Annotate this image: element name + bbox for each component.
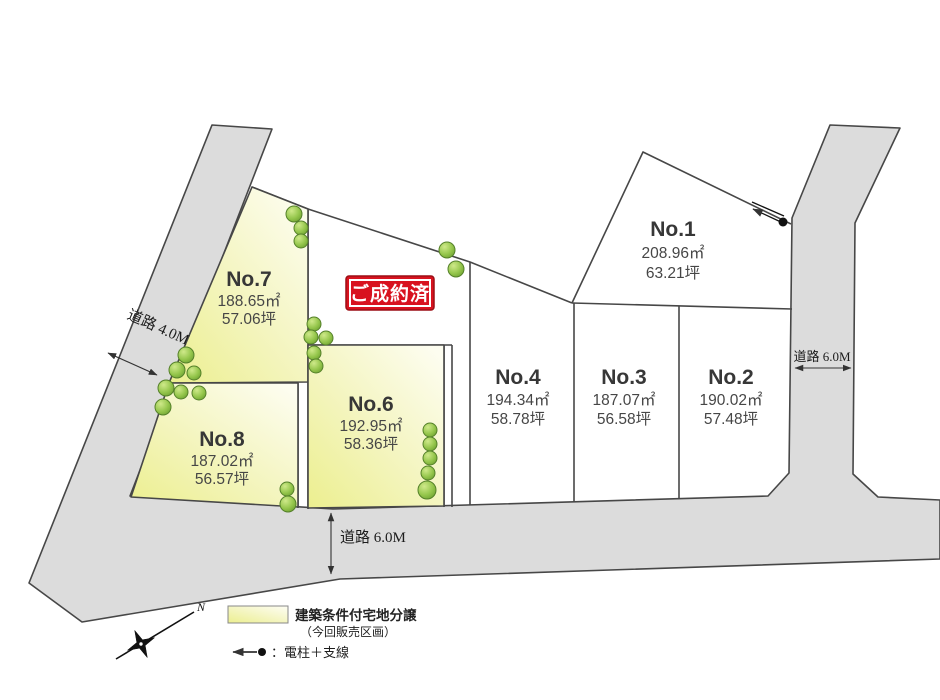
lot-no6-tsubo: 58.36坪 xyxy=(344,435,398,453)
lot-no3-name: No.3 xyxy=(601,366,647,389)
site-plan-page: No.1 208.96㎡ 63.21坪 No.2 190.02㎡ 57.48坪 … xyxy=(0,0,940,700)
tree-icon xyxy=(286,206,302,222)
pole-dot-icon xyxy=(779,218,788,227)
tree-icon xyxy=(294,221,308,235)
tree-icon xyxy=(155,399,171,415)
lot-no6-name: No.6 xyxy=(348,393,394,416)
tree-icon xyxy=(418,481,436,499)
tree-icon xyxy=(423,423,437,437)
lot-no7-tsubo: 57.06坪 xyxy=(222,310,276,328)
tree-icon xyxy=(158,380,174,396)
lot-no1-label: No.1 208.96㎡ 63.21坪 xyxy=(642,218,705,282)
tree-icon xyxy=(319,331,333,345)
tree-icon xyxy=(309,359,323,373)
lot-no8-label: No.8 187.02㎡ 56.57坪 xyxy=(191,428,254,488)
lot-no8-name: No.8 xyxy=(199,428,245,451)
lot-no8-tsubo: 56.57坪 xyxy=(195,470,249,488)
lot-no7-area: 188.65㎡ xyxy=(218,292,281,310)
tree-icon xyxy=(178,347,194,363)
legend-pole-dot-icon xyxy=(258,648,266,656)
lot-no7-name: No.7 xyxy=(226,268,272,291)
lot-no3-tsubo: 56.58坪 xyxy=(597,410,651,428)
lot-no4-area: 194.34㎡ xyxy=(487,391,550,409)
lot-no4-name: No.4 xyxy=(495,366,541,389)
lot-no2-area: 190.02㎡ xyxy=(700,391,763,409)
lot-no3-area: 187.07㎡ xyxy=(593,391,656,409)
lot-no1-tsubo: 63.21坪 xyxy=(646,264,700,282)
lot-no2-tsubo: 57.48坪 xyxy=(704,410,758,428)
tree-icon xyxy=(307,317,321,331)
lot-no3-label: No.3 187.07㎡ 56.58坪 xyxy=(593,366,656,428)
legend-swatch-note: （今回販売区画） xyxy=(300,624,396,639)
tree-icon xyxy=(423,437,437,451)
tree-icon xyxy=(192,386,206,400)
lot-no2-label: No.2 190.02㎡ 57.48坪 xyxy=(700,366,763,428)
tree-icon xyxy=(304,330,318,344)
tree-icon xyxy=(187,366,201,380)
tree-icon xyxy=(423,451,437,465)
lot-no6-label: No.6 192.95㎡ 58.36坪 xyxy=(340,393,403,453)
lot-no2-name: No.2 xyxy=(708,366,754,389)
sold-badge: ご成約済 xyxy=(346,276,434,310)
tree-icon xyxy=(294,234,308,248)
legend-swatch-label: 建築条件付宅地分譲 xyxy=(294,607,417,623)
tree-icon xyxy=(439,242,455,258)
tree-icon xyxy=(169,362,185,378)
tree-icon xyxy=(280,496,296,512)
legend-swatch xyxy=(228,606,288,623)
lot-no7-label: No.7 188.65㎡ 57.06坪 xyxy=(218,268,281,328)
road-label-right: 道路 6.0M xyxy=(793,349,851,364)
lot-no1-name: No.1 xyxy=(650,218,696,241)
tree-icon xyxy=(174,385,188,399)
lot-no6-area: 192.95㎡ xyxy=(340,417,403,435)
lot-no4-label: No.4 194.34㎡ 58.78坪 xyxy=(487,366,550,428)
compass-north-label: N xyxy=(196,600,206,614)
sold-badge-text: ご成約済 xyxy=(350,282,430,305)
lot-no4-tsubo: 58.78坪 xyxy=(491,410,545,428)
lot-no1-area: 208.96㎡ xyxy=(642,244,705,262)
tree-icon xyxy=(307,346,321,360)
road-label-bottom: 道路 6.0M xyxy=(340,529,406,546)
lot-map-svg: No.1 208.96㎡ 63.21坪 No.2 190.02㎡ 57.48坪 … xyxy=(0,0,940,700)
tree-icon xyxy=(280,482,294,496)
legend-pole-label: ：電柱＋支線 xyxy=(271,645,349,660)
tree-icon xyxy=(448,261,464,277)
lot-no8-area: 187.02㎡ xyxy=(191,452,254,470)
tree-icon xyxy=(421,466,435,480)
